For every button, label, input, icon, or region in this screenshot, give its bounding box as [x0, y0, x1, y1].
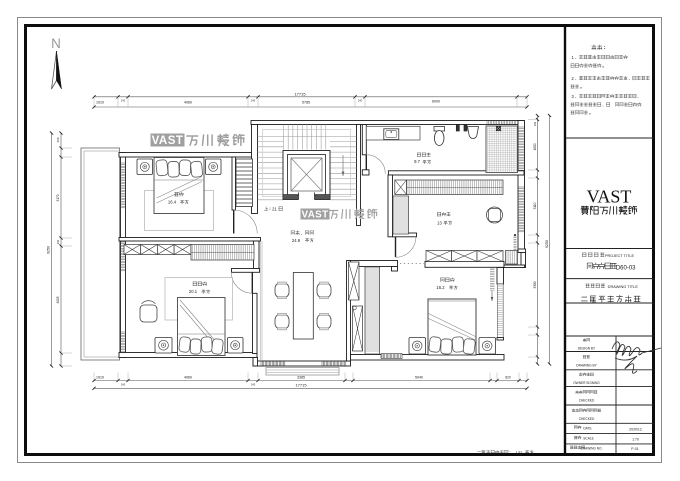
svg-text:820: 820: [505, 376, 511, 380]
svg-text:VAST: VAST: [152, 135, 184, 147]
svg-text:3385: 3385: [297, 376, 305, 380]
svg-text:240: 240: [56, 239, 60, 244]
svg-text:1910: 1910: [96, 376, 104, 380]
svg-text:240: 240: [121, 383, 126, 387]
svg-text:2020/12: 2020/12: [629, 427, 642, 431]
svg-text:CHECKED: CHECKED: [579, 417, 595, 421]
svg-text:3380: 3380: [533, 281, 537, 288]
svg-text:24.9: 24.9: [292, 238, 301, 243]
svg-text:VAST: VAST: [587, 187, 632, 207]
svg-text:4960: 4960: [184, 100, 192, 104]
svg-text:240: 240: [251, 383, 256, 387]
svg-text:240: 240: [121, 98, 126, 102]
svg-text:DESIGN BY: DESIGN BY: [578, 347, 596, 351]
svg-text:DRAWING BY: DRAWING BY: [576, 363, 597, 367]
svg-text:3170: 3170: [56, 194, 60, 201]
svg-text:1910: 1910: [96, 100, 104, 104]
svg-text:CHECKED: CHECKED: [579, 399, 595, 403]
svg-text:132: 132: [516, 450, 524, 455]
svg-text:PROJECT TITLE: PROJECT TITLE: [605, 254, 634, 258]
svg-text:1:70: 1:70: [632, 438, 639, 442]
svg-text:20.1: 20.1: [189, 289, 198, 294]
svg-text:360: 360: [56, 137, 60, 142]
svg-text:SCALE: SCALE: [583, 437, 593, 441]
svg-text:240: 240: [358, 98, 363, 102]
svg-text:VAST: VAST: [301, 209, 328, 220]
svg-text:DRAWING TITLE: DRAWING TITLE: [608, 284, 639, 289]
svg-text:17715: 17715: [295, 383, 307, 388]
svg-text:OWNER SIGNING: OWNER SIGNING: [573, 381, 600, 385]
svg-text:5785: 5785: [302, 100, 310, 104]
svg-text:21: 21: [272, 207, 277, 212]
svg-text:4005: 4005: [56, 296, 60, 303]
svg-text:3110: 3110: [533, 202, 537, 209]
svg-text:240: 240: [533, 121, 537, 126]
svg-text:16.4: 16.4: [168, 200, 177, 205]
svg-text:DRAWING NO.: DRAWING NO.: [581, 446, 603, 450]
svg-text:6000: 6000: [432, 99, 440, 103]
svg-text:P-01: P-01: [631, 447, 638, 451]
svg-text:N: N: [51, 36, 61, 51]
svg-text:240: 240: [251, 98, 256, 102]
svg-text:13: 13: [437, 221, 442, 226]
svg-text:4960: 4960: [184, 376, 192, 380]
svg-text:5040: 5040: [415, 376, 423, 380]
svg-text:9.7: 9.7: [414, 159, 420, 164]
svg-text:9250: 9250: [545, 240, 549, 248]
svg-text:17715: 17715: [294, 91, 306, 96]
svg-text:1600: 1600: [533, 143, 537, 150]
svg-text:DATE: DATE: [583, 426, 591, 430]
svg-text:D60-03: D60-03: [616, 265, 636, 271]
svg-text:9250: 9250: [47, 246, 51, 254]
svg-text:16.2: 16.2: [436, 285, 445, 290]
